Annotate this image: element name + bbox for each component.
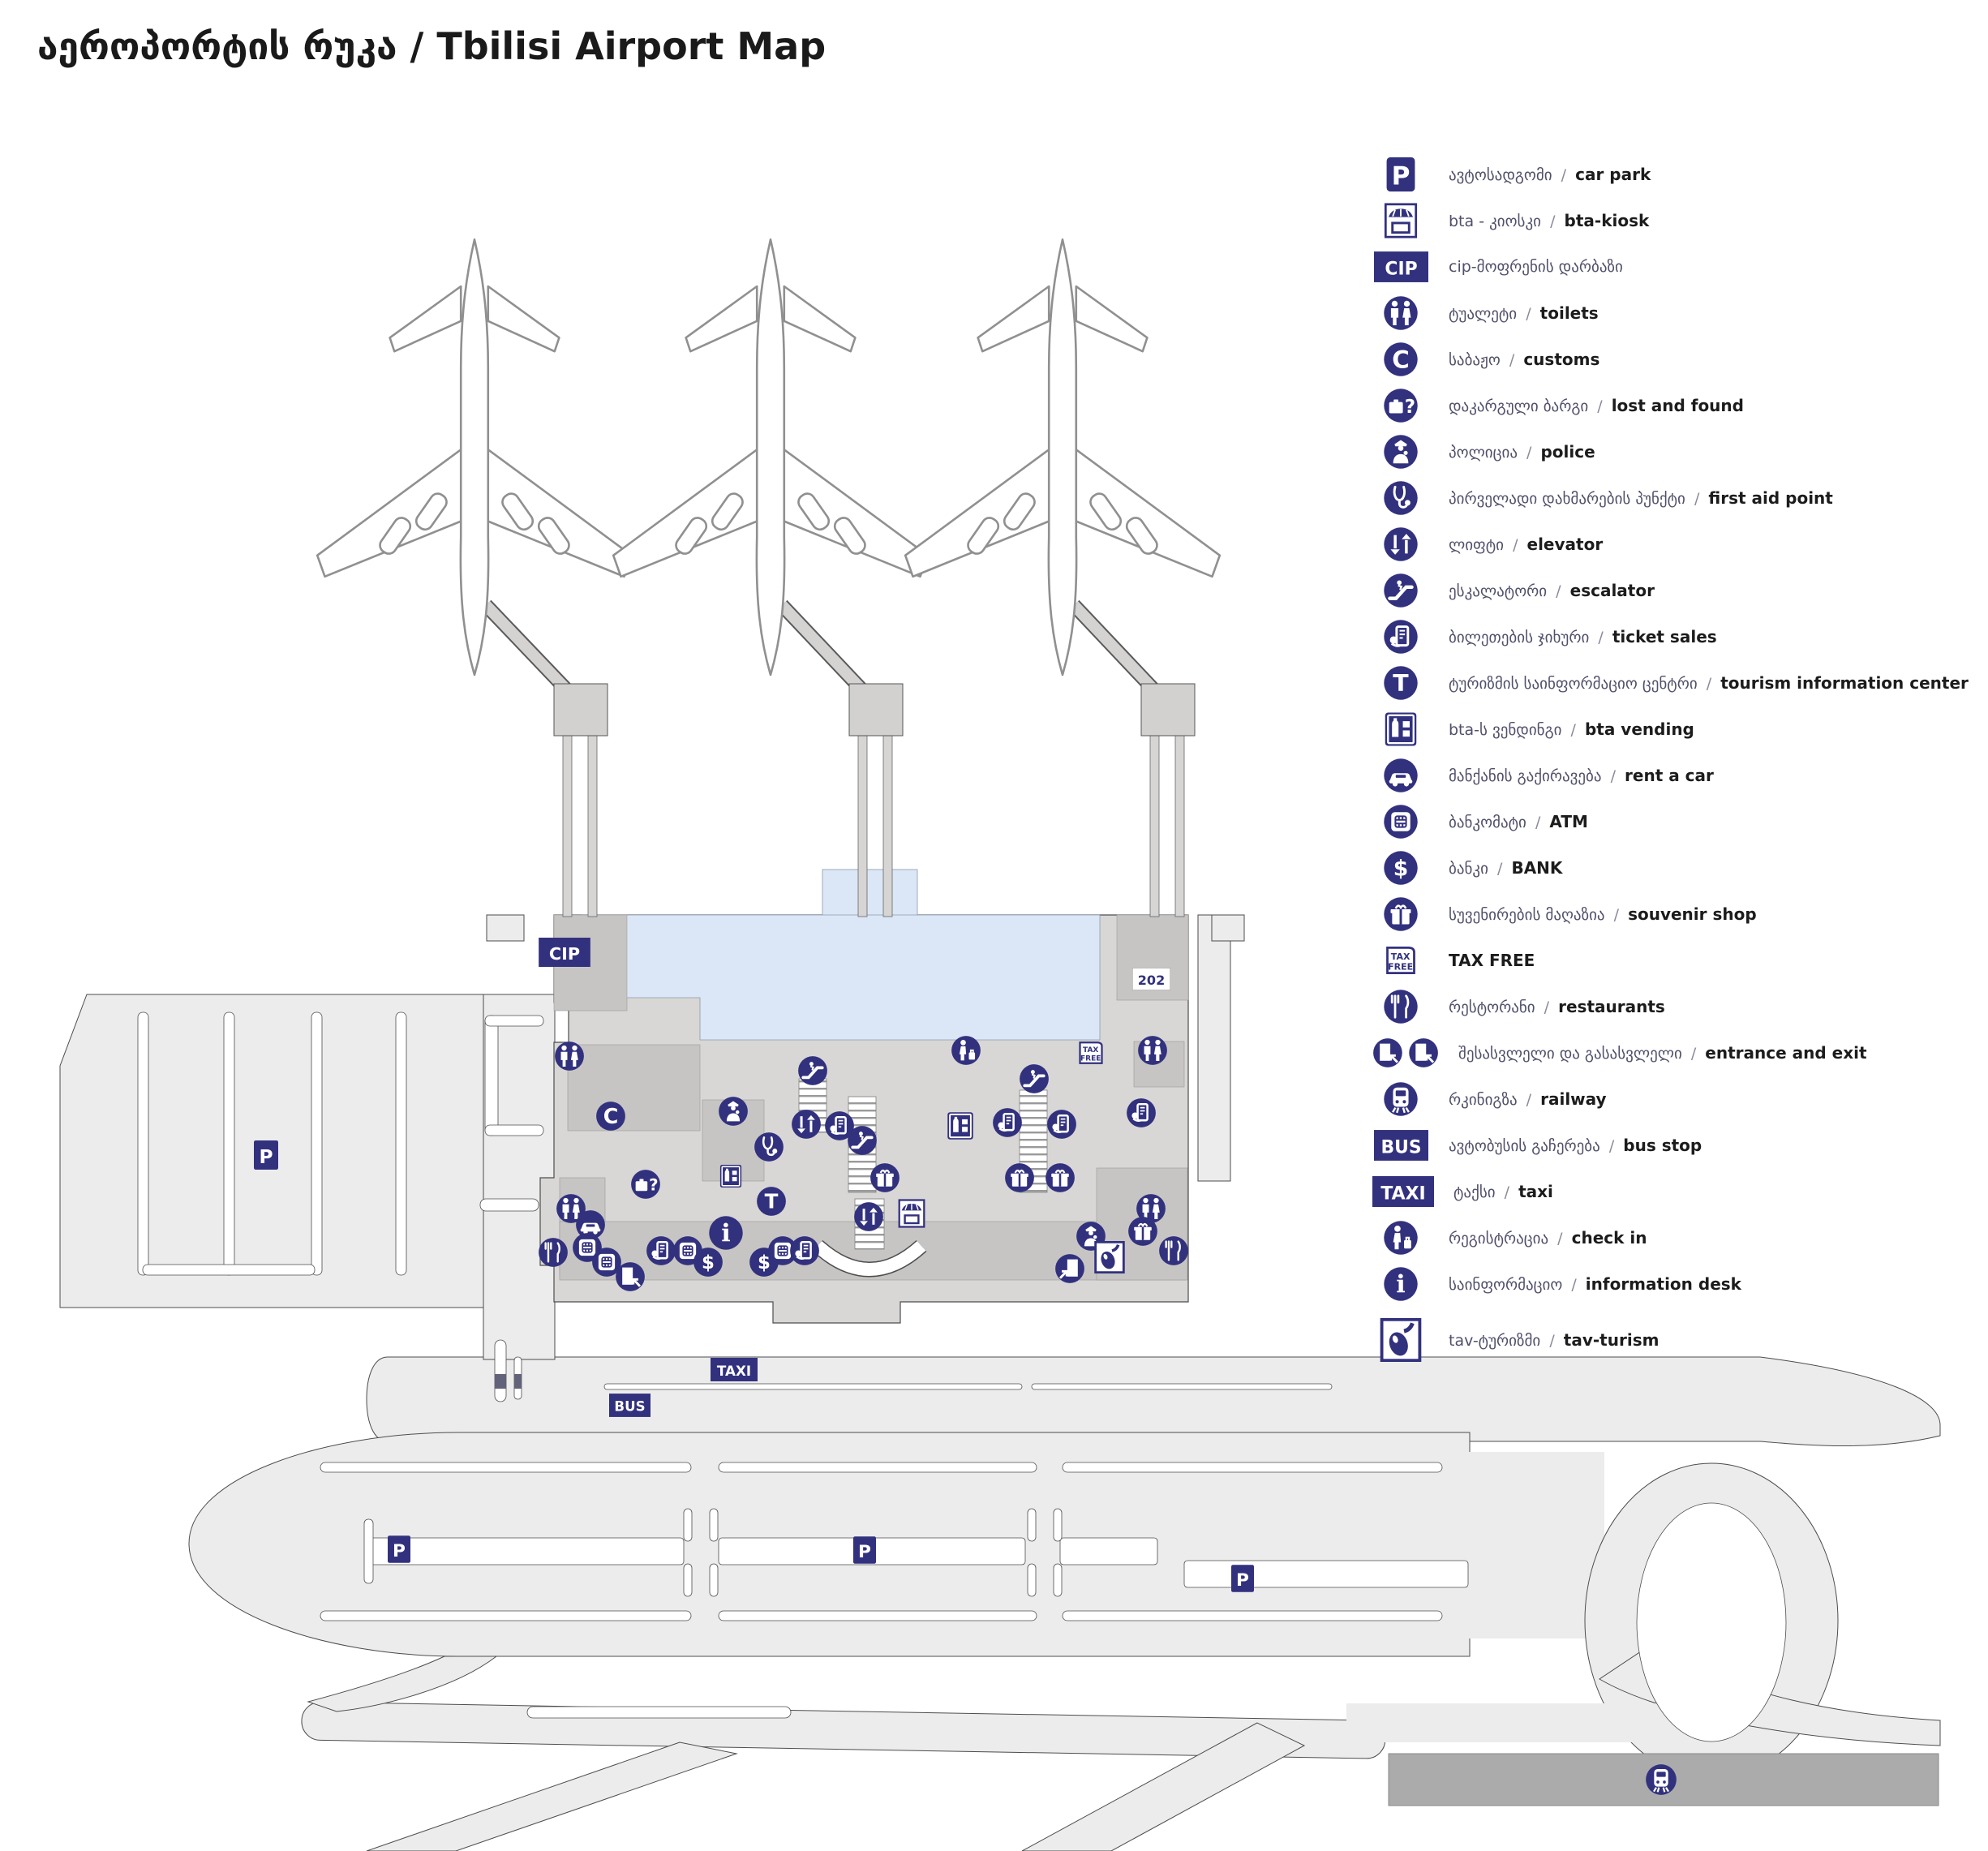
airplane	[613, 239, 928, 675]
svg-text:C: C	[1392, 346, 1410, 373]
legend-label: TAX FREE	[1449, 951, 1535, 970]
train-icon	[1645, 1763, 1677, 1796]
legend-label: საბაჟო / customs	[1449, 350, 1599, 369]
legend-item-bank: $ბანკი / BANK	[1372, 849, 1977, 886]
legend-item-police: პოლიცია / police	[1372, 433, 1977, 470]
airplane	[317, 239, 632, 675]
bus-label-icon: BUS	[1372, 1130, 1429, 1161]
bta-vending-icon	[946, 1111, 975, 1140]
legend-item-car-park: Pავტოსადგომი / car park	[1372, 156, 1977, 192]
customs-icon: C	[595, 1101, 626, 1132]
legend-item-cip-label: CIPcip-მოფრენის დარბაზი	[1372, 248, 1977, 285]
legend-item-bta-kiosk: bta - კიოსკი / bta-kiosk	[1372, 202, 1977, 238]
tax-free-icon: TAXFREE	[1076, 1038, 1106, 1067]
legend-label: დაკარგული ბარგი / lost and found	[1449, 396, 1744, 415]
p-label: P	[853, 1536, 876, 1564]
rent-a-car-icon	[1372, 758, 1429, 793]
legend-label: ტურიზმის საინფორმაციო ცენტრი / tourism i…	[1449, 673, 1969, 693]
legend-label: bta-ს ვენდინგი / bta vending	[1449, 719, 1694, 739]
legend-label: ტაქსი / taxi	[1453, 1182, 1553, 1201]
restaurants-icon	[1372, 989, 1429, 1024]
legend-item-check-in: რეგისტრაცია / check in	[1372, 1219, 1977, 1256]
toilets-icon	[1372, 295, 1429, 331]
bta-vending-icon	[1372, 711, 1429, 747]
legend-item-lost-found: ?დაკარგული ბარგი / lost and found	[1372, 387, 1977, 423]
legend: Pავტოსადგომი / car parkbta - კიოსკი / bt…	[1372, 156, 1977, 1372]
svg-text:CIP: CIP	[549, 944, 580, 964]
terminal-building	[540, 870, 1188, 1323]
info-icon: i	[1372, 1266, 1429, 1302]
ticket-sales-icon	[789, 1235, 820, 1266]
legend-item-elevator: ლიფტი / elevator	[1372, 526, 1977, 562]
svg-text:TAX: TAX	[1391, 951, 1410, 961]
cip-label: CIP	[539, 938, 590, 967]
legend-label: ბანკომატი / ATM	[1449, 812, 1588, 831]
taxi-label-icon: TAXI	[1372, 1176, 1434, 1207]
legend-item-bta-vending: bta-ს ვენდინგი / bta vending	[1372, 711, 1977, 747]
info-icon: i	[708, 1215, 744, 1251]
cip-label-icon: CIP	[1372, 251, 1429, 282]
svg-text:i: i	[1396, 1270, 1406, 1299]
legend-item-toilets: ტუალეტი / toilets	[1372, 294, 1977, 331]
legend-label: ავტობუსის გაჩერება / bus stop	[1449, 1136, 1702, 1155]
police-icon	[718, 1096, 749, 1127]
souvenir-icon	[1045, 1162, 1076, 1193]
escalator-icon	[1019, 1063, 1050, 1094]
legend-item-train: რკინიგზა / railway	[1372, 1080, 1977, 1117]
svg-text:FREE: FREE	[1388, 961, 1413, 972]
legend-label: ლიფტი / elevator	[1449, 535, 1603, 554]
atm-icon	[1372, 804, 1429, 840]
legend-item-bus-label: BUSავტობუსის გაჩერება / bus stop	[1372, 1127, 1977, 1163]
ticket-sales-icon	[1126, 1097, 1157, 1128]
door-in-icon	[615, 1261, 646, 1292]
car-park-icon: P	[1372, 157, 1429, 192]
bus-label: BUS	[609, 1394, 651, 1417]
svg-text:TAX: TAX	[1083, 1046, 1098, 1054]
legend-label: შესასვლელი და გასასვლელი / entrance and …	[1458, 1043, 1867, 1063]
legend-label: cip-მოფრენის დარბაზი	[1449, 258, 1623, 276]
gate-202: 202	[1132, 968, 1170, 990]
tav-turism-icon	[1372, 1318, 1429, 1362]
legend-label: პოლიცია / police	[1449, 442, 1595, 462]
svg-text:FREE: FREE	[1080, 1054, 1101, 1063]
legend-label: მანქანის გაქირავება / rent a car	[1449, 766, 1714, 785]
tav-turism-icon	[1093, 1241, 1126, 1273]
tourism-icon: T	[1372, 665, 1429, 701]
gates-layer	[317, 239, 1220, 917]
escalator-icon	[847, 1125, 878, 1156]
tourism-icon: T	[756, 1186, 787, 1217]
legend-item-souvenir: სუვენირების მაღაზია / souvenir shop	[1372, 895, 1977, 932]
legend-label: რესტორანი / restaurants	[1449, 997, 1665, 1016]
lost-found-icon: ?	[630, 1169, 661, 1200]
svg-text:T: T	[765, 1190, 779, 1213]
legend-label: ავტოსადგომი / car park	[1449, 165, 1651, 184]
first-aid-icon	[1372, 480, 1429, 516]
svg-text:CIP: CIP	[1385, 259, 1417, 279]
souvenir-icon	[1372, 896, 1429, 932]
p-label: P	[388, 1535, 410, 1563]
police-icon	[1372, 434, 1429, 470]
bta-kiosk-icon	[1372, 203, 1429, 238]
svg-text:T: T	[1393, 669, 1409, 696]
legend-item-ticket-sales: ბილეთების ჯიხური / ticket sales	[1372, 618, 1977, 655]
svg-text:202: 202	[1137, 973, 1164, 988]
elevator-icon	[853, 1201, 884, 1232]
legend-label: საინფორმაციო / information desk	[1449, 1274, 1741, 1294]
lost-found-icon: ?	[1372, 388, 1429, 423]
svg-text:P: P	[393, 1541, 406, 1561]
check-in-icon	[951, 1035, 981, 1066]
svg-text:BUS: BUS	[614, 1398, 645, 1414]
legend-item-restaurants: რესტორანი / restaurants	[1372, 988, 1977, 1024]
elevator-icon	[791, 1109, 822, 1140]
legend-item-tav-turism: tav-ტურიზმი / tav-turism	[1372, 1318, 1977, 1362]
first-aid-icon	[754, 1132, 784, 1162]
train-icon	[1372, 1081, 1429, 1117]
legend-item-taxi-label: TAXIტაქსი / taxi	[1372, 1173, 1977, 1209]
legend-item-rent-a-car: მანქანის გაქირავება / rent a car	[1372, 757, 1977, 793]
svg-text:P: P	[1392, 161, 1410, 191]
legend-item-customs: Cსაბაჟო / customs	[1372, 341, 1977, 377]
escalator-icon	[797, 1055, 828, 1086]
legend-label: რკინიგზა / railway	[1449, 1089, 1607, 1109]
svg-text:$: $	[1393, 856, 1409, 881]
legend-item-info: iსაინფორმაციო / information desk	[1372, 1265, 1977, 1302]
souvenir-icon	[1127, 1216, 1158, 1247]
legend-label: ბანკი / BANK	[1449, 858, 1562, 878]
legend-label: ესკალატორი / escalator	[1449, 581, 1655, 600]
taxi-label: TAXI	[711, 1358, 758, 1381]
legend-label: სუვენირების მაღაზია / souvenir shop	[1449, 904, 1757, 924]
restaurants-icon	[538, 1237, 569, 1268]
svg-text:C: C	[603, 1104, 619, 1128]
svg-text:i: i	[721, 1220, 731, 1248]
legend-item-entrance-exit: შესასვლელი და გასასვლელი / entrance and …	[1372, 1034, 1977, 1071]
legend-item-tax-free: TAXFREETAX FREE	[1372, 942, 1977, 978]
legend-label: პირველადი დახმარების პუნქტი / first aid …	[1449, 488, 1833, 508]
legend-item-escalator: ესკალატორი / escalator	[1372, 572, 1977, 608]
bta-vending-icon	[719, 1164, 743, 1188]
customs-icon: C	[1372, 341, 1429, 377]
svg-text:P: P	[259, 1146, 273, 1168]
souvenir-icon	[869, 1162, 900, 1193]
legend-item-first-aid: პირველადი დახმარების პუნქტი / first aid …	[1372, 479, 1977, 516]
airport-map-page: აეროპორტის რუკა / Tbilisi Airport Map	[0, 0, 1988, 1851]
svg-text:BUS: BUS	[1380, 1137, 1421, 1157]
tax-free-icon: TAXFREE	[1372, 943, 1429, 978]
legend-label: ბილეთების ჯიხური / ticket sales	[1449, 627, 1717, 646]
svg-text:P: P	[1236, 1570, 1249, 1591]
bank-icon: $	[693, 1247, 723, 1278]
escalator-icon	[1372, 573, 1429, 608]
ticket-sales-icon	[1372, 619, 1429, 655]
p-label: P	[254, 1140, 278, 1170]
check-in-icon	[1372, 1220, 1429, 1256]
legend-item-tourism: Tტურიზმის საინფორმაციო ცენტრი / tourism …	[1372, 664, 1977, 701]
door-out-icon	[1054, 1253, 1085, 1284]
toilets-icon	[554, 1041, 585, 1072]
elevator-icon	[1372, 526, 1429, 562]
legend-label: რეგისტრაცია / check in	[1449, 1228, 1647, 1248]
toilets-icon	[1137, 1035, 1168, 1066]
legend-label: tav-ტურიზმი / tav-turism	[1449, 1330, 1659, 1350]
airplane	[905, 239, 1220, 675]
svg-text:$: $	[702, 1252, 715, 1273]
entrance-exit-icon	[1372, 1037, 1439, 1068]
bank-icon: $	[1372, 850, 1429, 886]
svg-text:TAXI: TAXI	[1380, 1183, 1425, 1204]
ticket-sales-icon	[1046, 1109, 1077, 1140]
souvenir-icon	[1004, 1162, 1035, 1193]
p-label: P	[1231, 1565, 1254, 1592]
svg-text:P: P	[858, 1542, 871, 1562]
svg-text:TAXI: TAXI	[717, 1362, 751, 1378]
ticket-sales-icon	[992, 1107, 1023, 1138]
legend-item-atm: ბანკომატი / ATM	[1372, 803, 1977, 840]
legend-label: ტუალეტი / toilets	[1449, 303, 1599, 323]
kiosk-icon	[897, 1199, 926, 1228]
legend-label: bta - კიოსკი / bta-kiosk	[1449, 211, 1649, 230]
restaurants-icon	[1158, 1235, 1189, 1266]
svg-text:?: ?	[1405, 396, 1415, 417]
svg-text:?: ?	[649, 1176, 658, 1195]
